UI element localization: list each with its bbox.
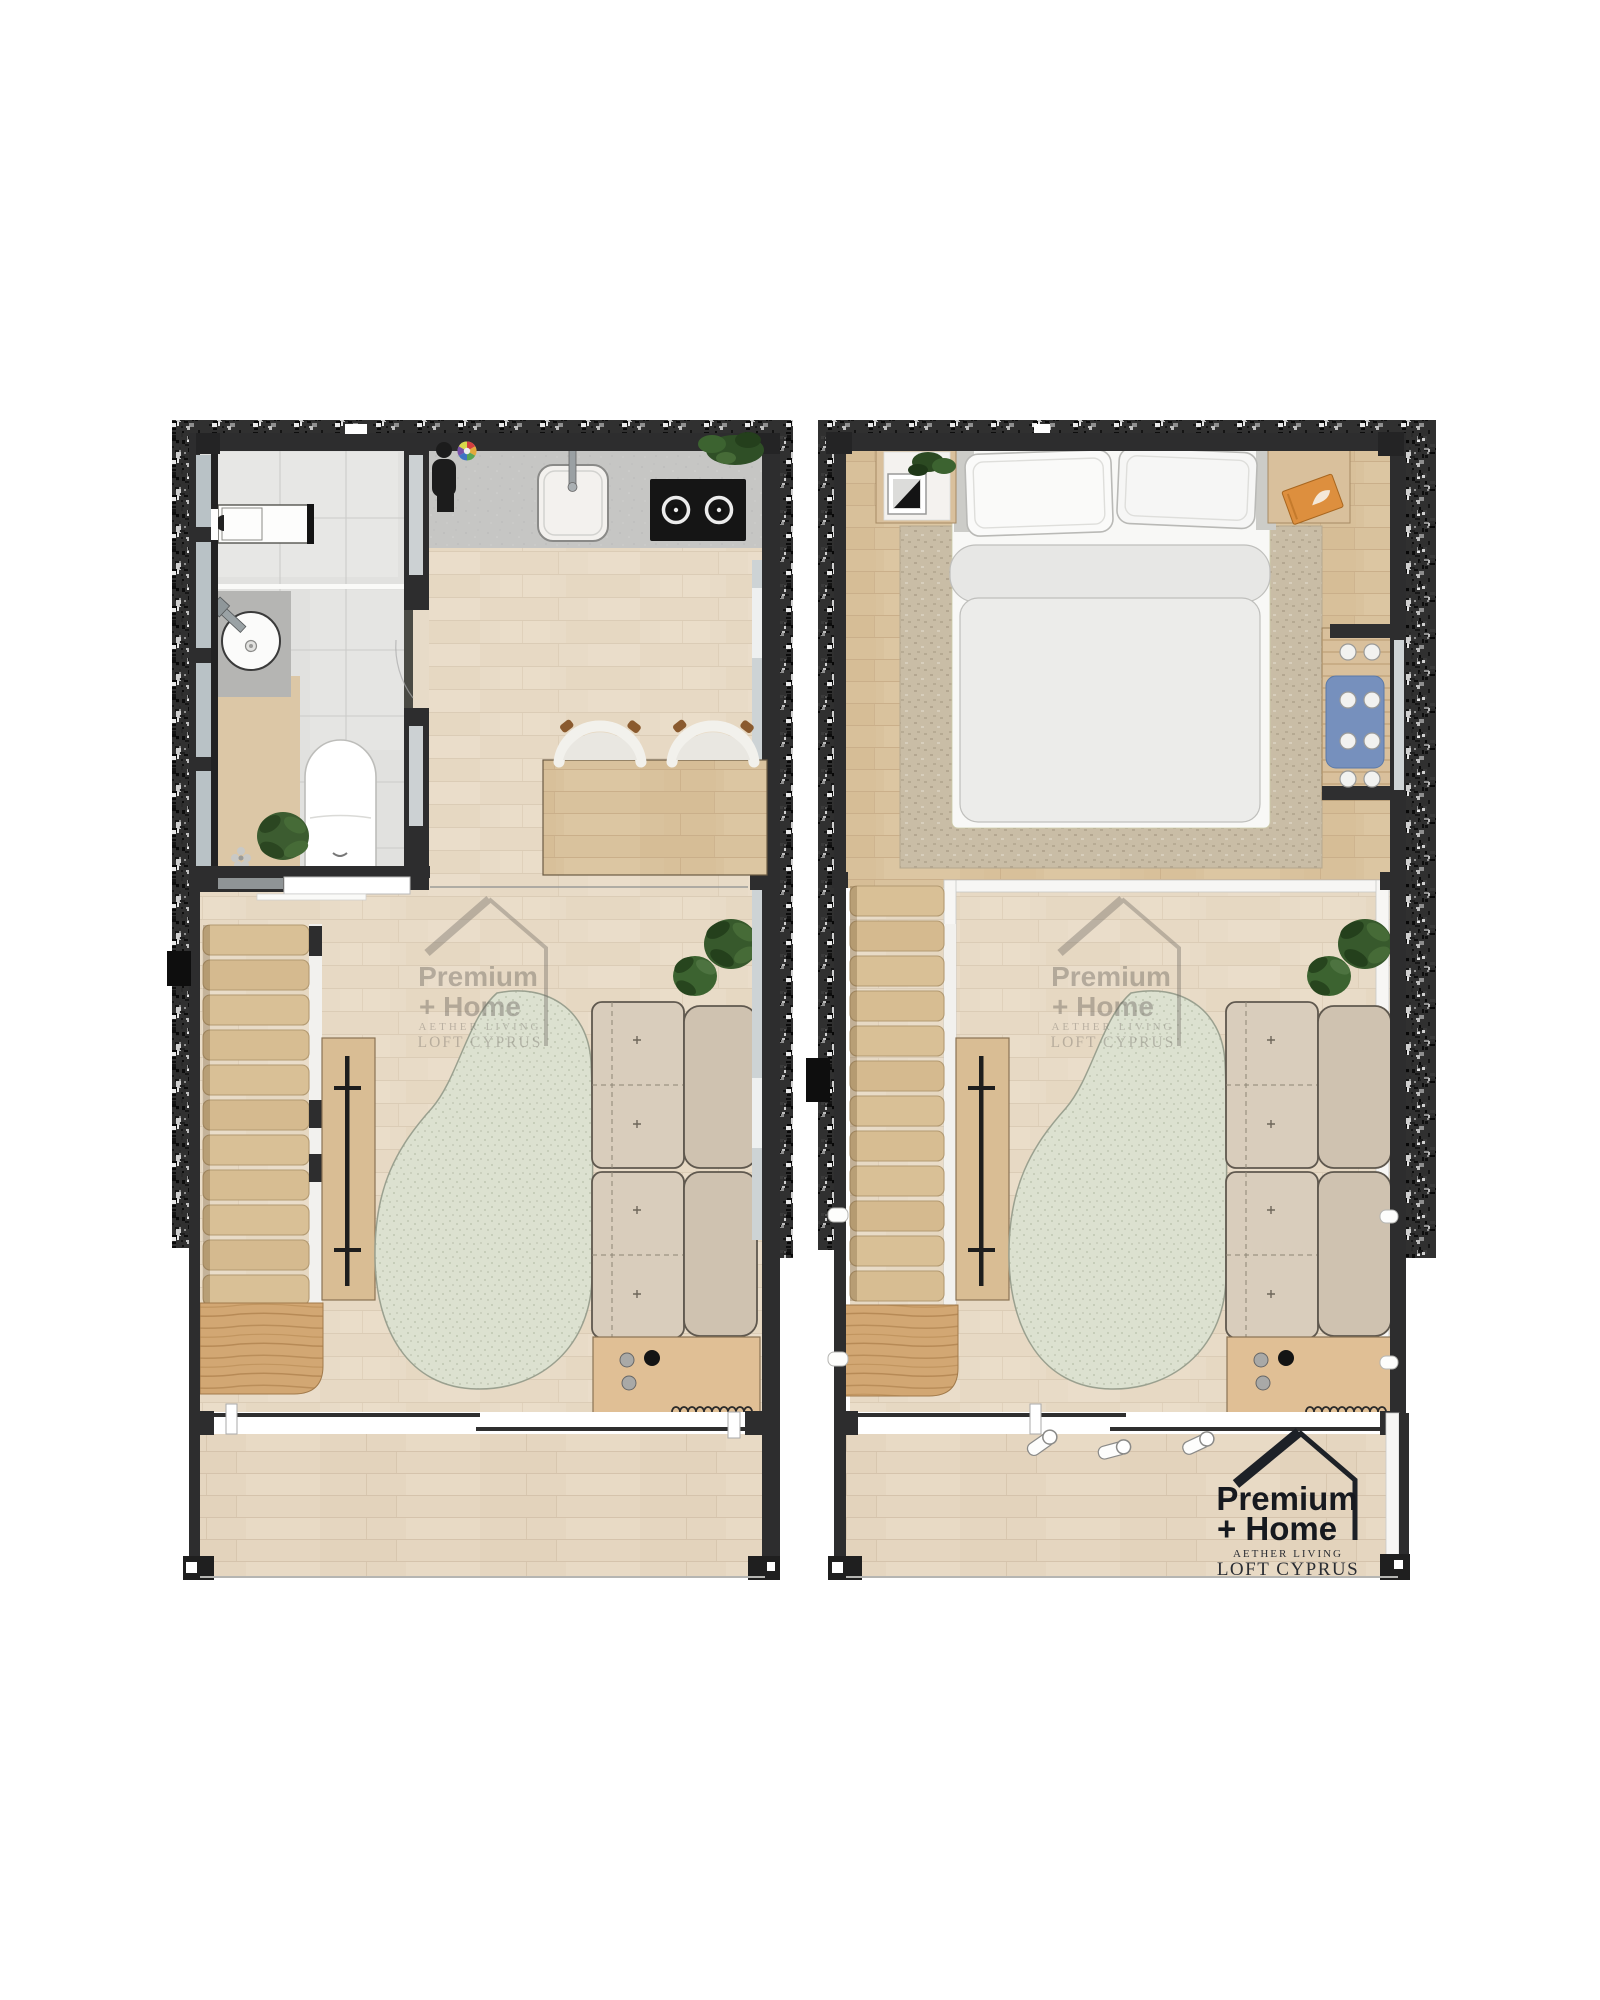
svg-text:AETHER LIVING: AETHER LIVING: [418, 1021, 541, 1033]
svg-text:LOFT CYPRUS: LOFT CYPRUS: [1051, 1034, 1176, 1051]
svg-text:+ Home: + Home: [1052, 991, 1154, 1022]
svg-text:Premium: Premium: [1051, 961, 1171, 992]
svg-text:LOFT CYPRUS: LOFT CYPRUS: [418, 1034, 543, 1051]
svg-text:+ Home: + Home: [1217, 1510, 1337, 1547]
svg-text:+ Home: + Home: [419, 991, 521, 1022]
svg-text:AETHER LIVING: AETHER LIVING: [1051, 1021, 1174, 1033]
svg-text:Premium: Premium: [418, 961, 538, 992]
